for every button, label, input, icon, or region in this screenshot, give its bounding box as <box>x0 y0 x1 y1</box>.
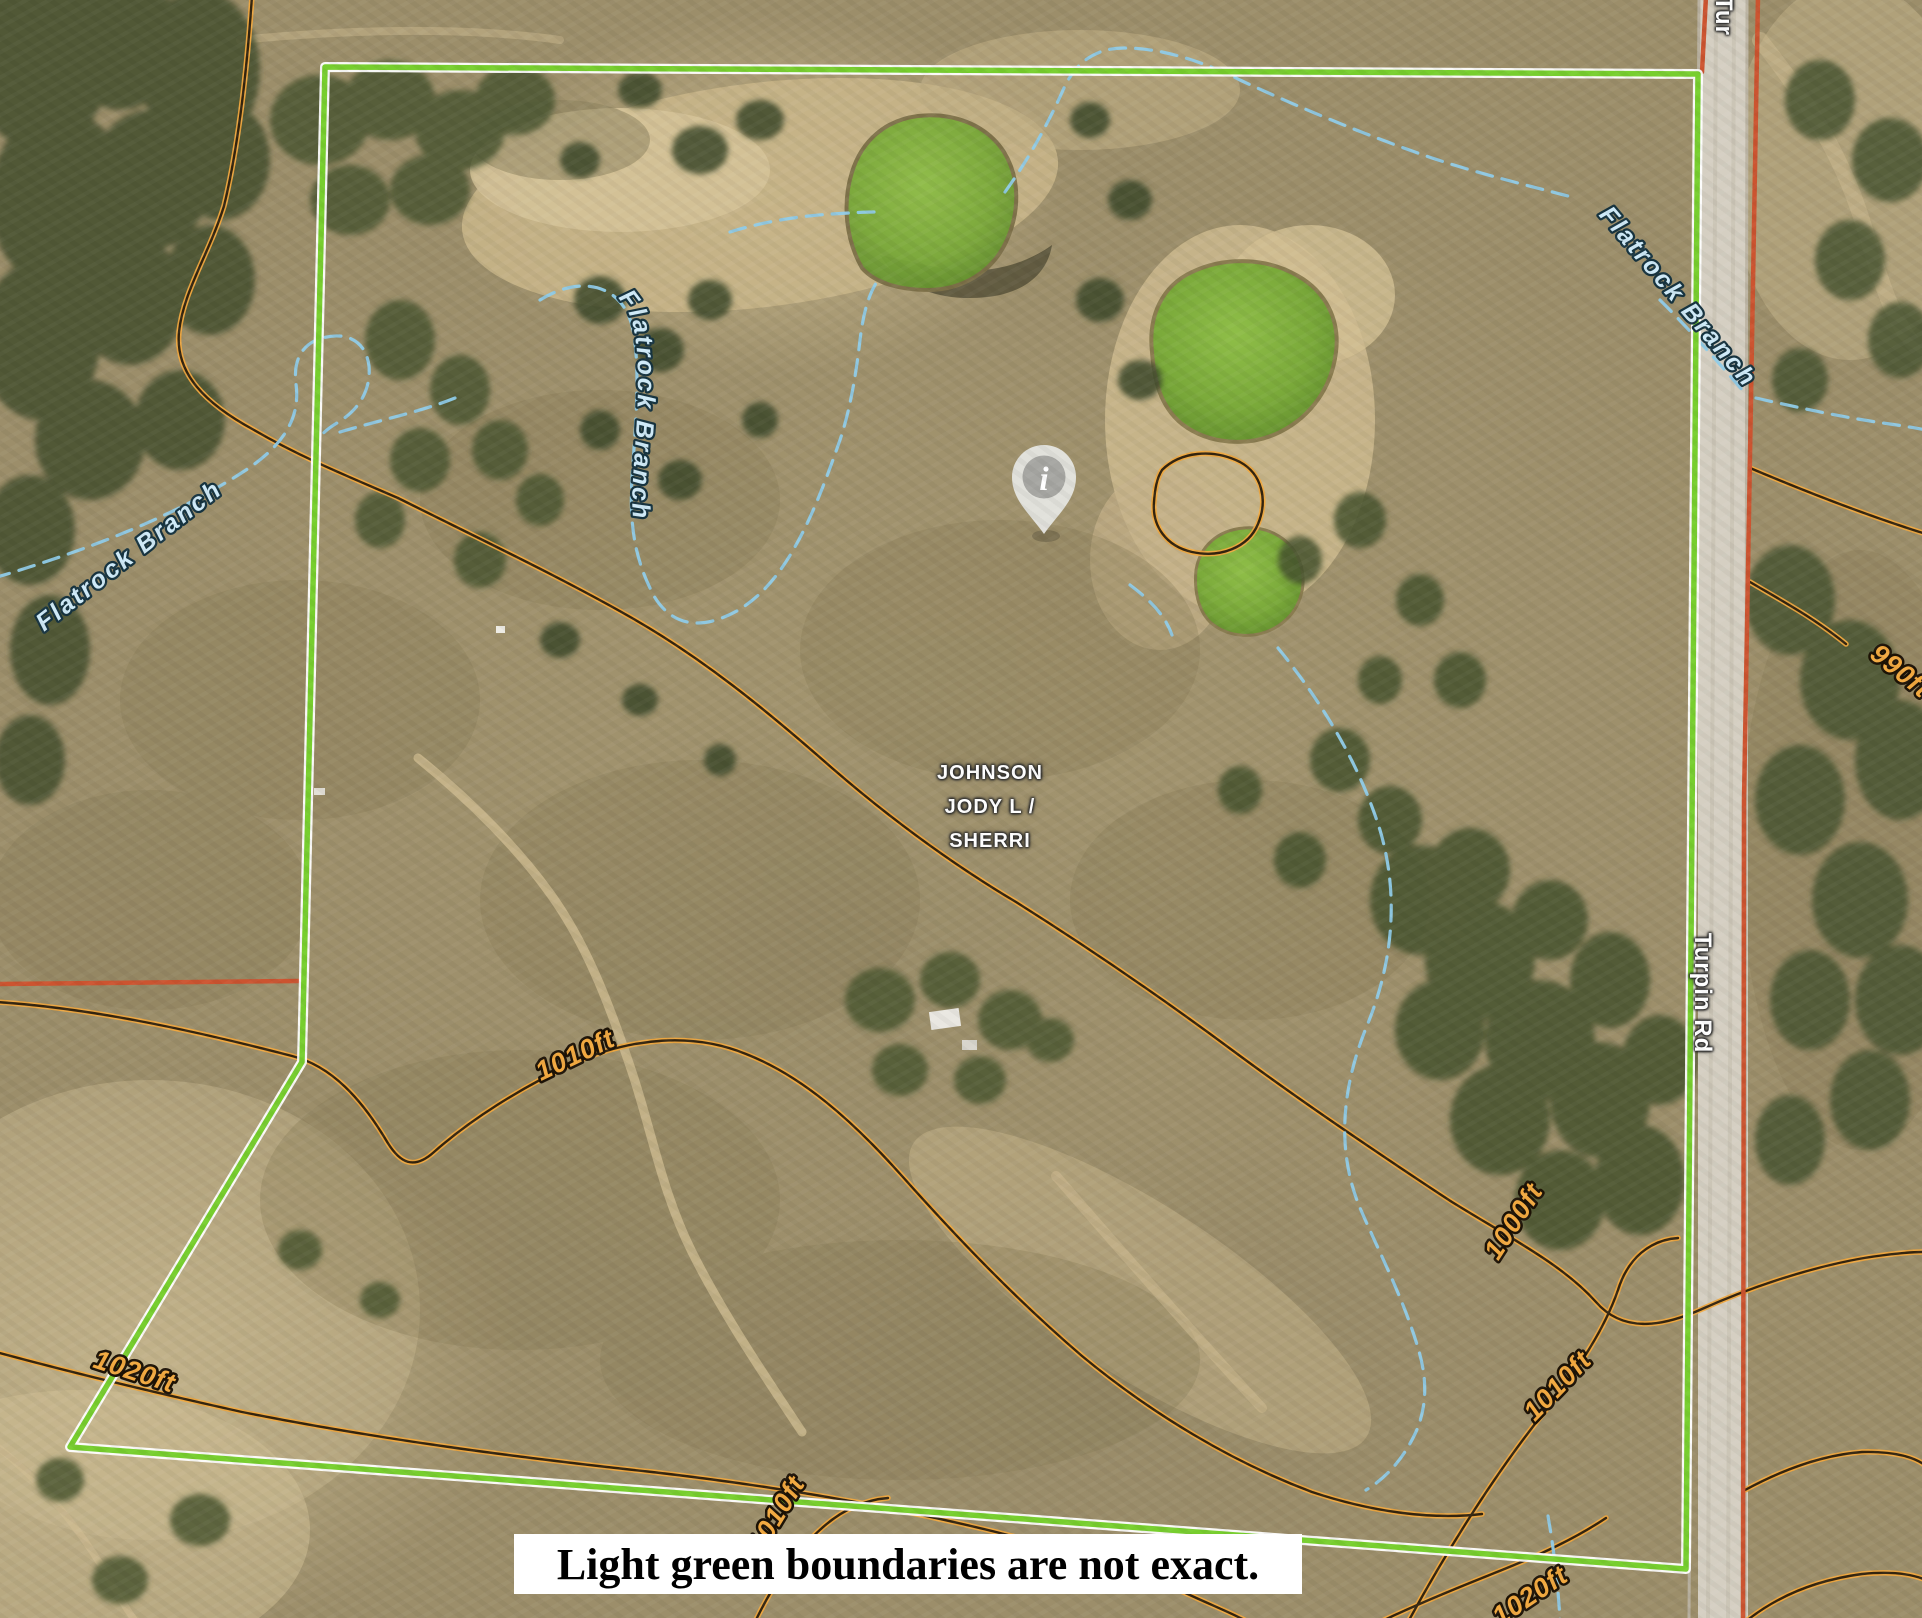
parcel-owner-line3: SHERRI <box>890 824 1090 858</box>
turpin-rd-label-top-partial: Tur <box>1709 0 1737 47</box>
parcel-owner-line2: JODY L / <box>890 790 1090 824</box>
parcel-owner-label: JOHNSON JODY L / SHERRI <box>890 756 1090 858</box>
turpin-rd-label: Turpin Rd <box>1688 932 1716 1054</box>
boundary-disclaimer-caption: Light green boundaries are not exact. <box>514 1534 1302 1594</box>
info-icon: i <box>1039 461 1049 498</box>
contour-label-1010ft-east: 1010ft <box>1518 1345 1598 1427</box>
parcel-owner-line1: JOHNSON <box>890 756 1090 790</box>
map-canvas[interactable]: Flatrock Branch Flatrock Branch Flatrock… <box>0 0 1922 1618</box>
